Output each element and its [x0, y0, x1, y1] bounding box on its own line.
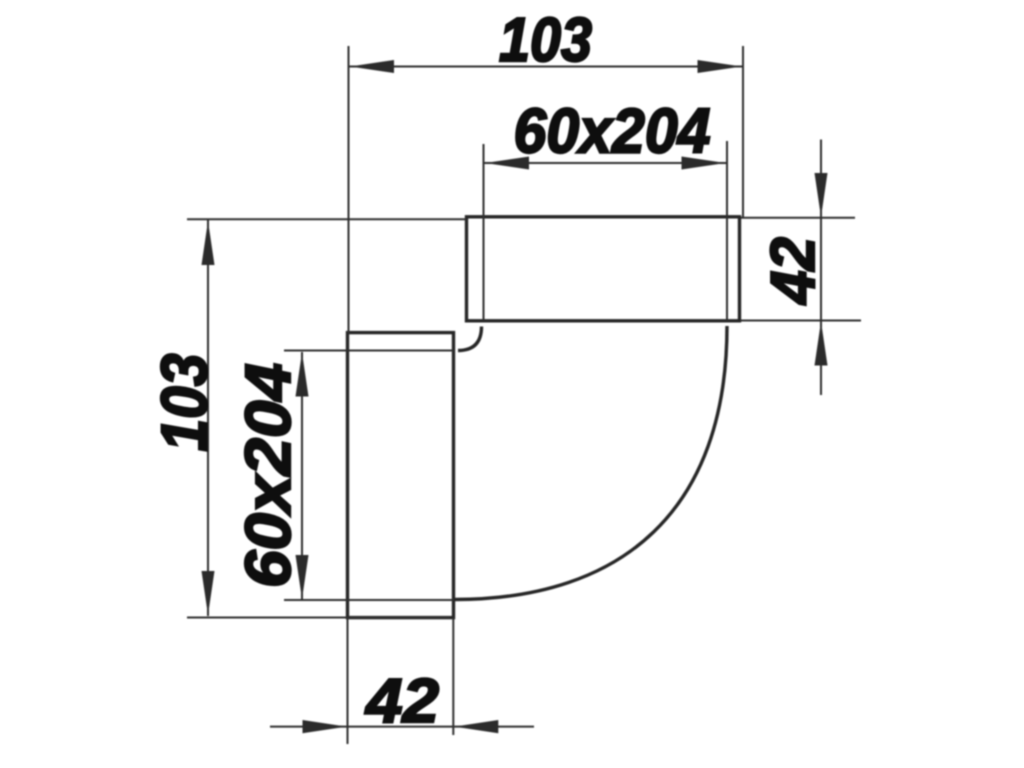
svg-text:42: 42: [364, 667, 439, 736]
svg-text:60x204: 60x204: [232, 363, 304, 588]
svg-text:42: 42: [759, 237, 828, 306]
svg-text:103: 103: [499, 6, 592, 75]
svg-text:103: 103: [148, 354, 221, 452]
svg-text:60x204: 60x204: [514, 97, 711, 167]
